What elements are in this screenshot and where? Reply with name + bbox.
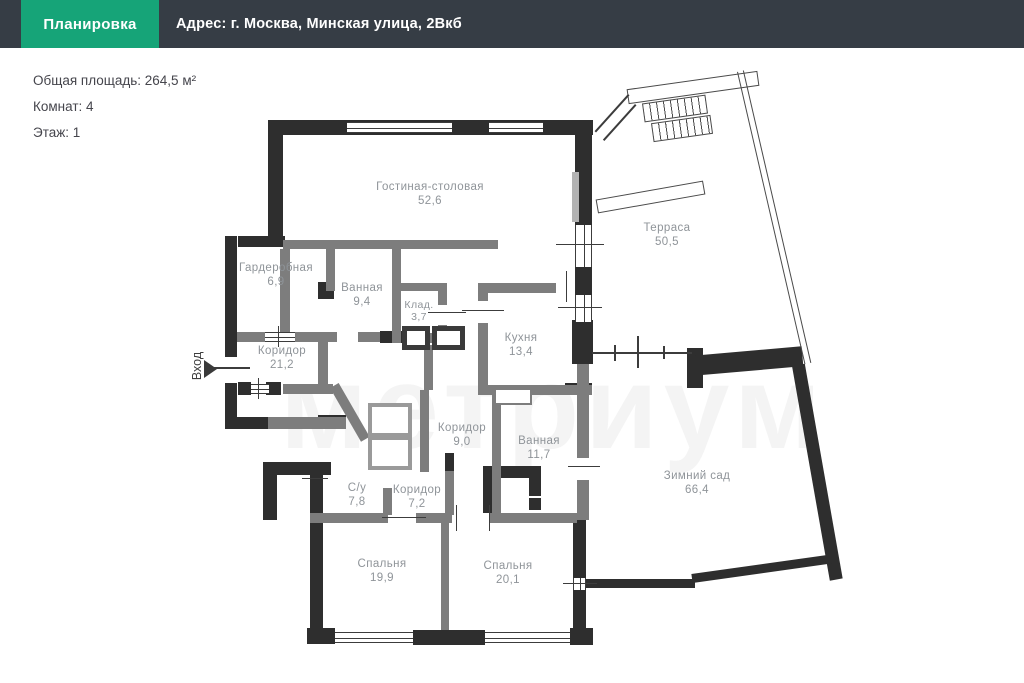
vent-shaft (402, 326, 430, 350)
wall (478, 283, 556, 293)
window (347, 122, 452, 133)
terrace-beam (596, 181, 706, 214)
room-area: 20,1 (458, 574, 558, 588)
room-label-living: Гостиная-столовая 52,6 (330, 181, 530, 208)
axis-tick (302, 478, 328, 479)
room-name: Клад. (379, 299, 459, 311)
entrance-arrow-icon (204, 360, 217, 378)
wall (237, 332, 265, 342)
window (485, 632, 570, 643)
axis-tick (258, 378, 259, 399)
window (265, 332, 295, 342)
wall (310, 523, 323, 633)
wall (283, 384, 333, 394)
door-leaf (494, 388, 532, 405)
wall (310, 513, 577, 523)
wall (424, 345, 433, 390)
wall (238, 382, 251, 395)
axis-tick (563, 583, 597, 584)
room-name: Спальня (332, 558, 432, 572)
room-name: Ванная (489, 435, 589, 449)
wall-lining (572, 172, 579, 222)
window (251, 384, 269, 394)
room-name: Коридор (232, 345, 332, 359)
floor-plan: метриум (0, 0, 1024, 683)
room-label-kitchen: Кухня 13,4 (471, 332, 571, 359)
room-name: Гардеробная (216, 262, 336, 276)
axis-tick (489, 505, 490, 531)
window (575, 225, 592, 267)
window (335, 632, 413, 643)
wall (573, 520, 586, 578)
axis-tick (558, 307, 602, 308)
door-opening (452, 513, 490, 523)
room-area: 21,2 (232, 359, 332, 373)
wall (441, 523, 449, 630)
terrace-line (603, 104, 636, 141)
wall (577, 364, 589, 388)
fence-line (592, 352, 692, 354)
room-name: Спальня (458, 560, 558, 574)
wall (307, 628, 335, 644)
wall (268, 120, 283, 241)
axis-tick (614, 345, 616, 361)
wall (575, 267, 592, 295)
room-label-terrace: Терраса 50,5 (617, 222, 717, 249)
room-label-bath2: Ванная 11,7 (489, 435, 589, 462)
window (489, 122, 543, 133)
vent-shaft (432, 326, 465, 350)
window (575, 295, 592, 322)
axis-tick (556, 244, 604, 245)
door-opening (388, 513, 416, 523)
room-label-winter-garden: Зимний сад 66,4 (637, 470, 757, 497)
wall (268, 417, 346, 429)
wall (283, 240, 498, 249)
terrace-edge (737, 70, 811, 364)
closet (368, 403, 412, 437)
room-label-bedroom1: Спальня 19,9 (332, 558, 432, 585)
room-area: 3,7 (379, 311, 459, 323)
wall (238, 236, 285, 247)
wall (225, 236, 237, 357)
wall (358, 332, 380, 342)
room-name: Гостиная-столовая (330, 181, 530, 195)
room-area: 11,7 (489, 449, 589, 463)
axis-tick (278, 326, 279, 347)
room-area: 13,4 (471, 346, 571, 360)
floor-plan-page: Планировка Адрес: г. Москва, Минская ули… (0, 0, 1024, 683)
room-name: Кухня (471, 332, 571, 346)
room-name: Терраса (617, 222, 717, 236)
shaft-wall (529, 498, 541, 510)
room-label-corridor3: Коридор 7,2 (367, 484, 467, 511)
wall (573, 590, 586, 632)
axis-tick (568, 466, 600, 467)
closet (368, 436, 412, 470)
axis-tick (637, 336, 639, 368)
window (573, 578, 586, 590)
axis-tick (663, 346, 665, 359)
room-label-corridor1: Коридор 21,2 (232, 345, 332, 372)
room-area: 19,9 (332, 572, 432, 586)
axis-tick (382, 517, 426, 518)
room-area: 7,2 (367, 498, 467, 512)
room-area: 52,6 (330, 195, 530, 209)
room-area: 66,4 (637, 484, 757, 498)
room-label-storage: Клад. 3,7 (379, 299, 459, 323)
axis-tick (462, 310, 504, 311)
room-area: 50,5 (617, 236, 717, 250)
wall (572, 320, 593, 364)
wall (263, 462, 277, 520)
room-name: Коридор (367, 484, 467, 498)
axis-tick (566, 271, 567, 302)
room-name: Коридор (412, 422, 512, 436)
wall (691, 553, 839, 583)
room-label-bedroom2: Спальня 20,1 (458, 560, 558, 587)
room-name: Зимний сад (637, 470, 757, 484)
terrace-line (595, 94, 630, 132)
wall (413, 630, 485, 645)
wall (295, 332, 337, 342)
wall (577, 480, 589, 520)
room-name: Ванная (312, 282, 412, 296)
shaft-wall (529, 466, 541, 496)
wall (225, 417, 271, 429)
wall (445, 453, 454, 471)
